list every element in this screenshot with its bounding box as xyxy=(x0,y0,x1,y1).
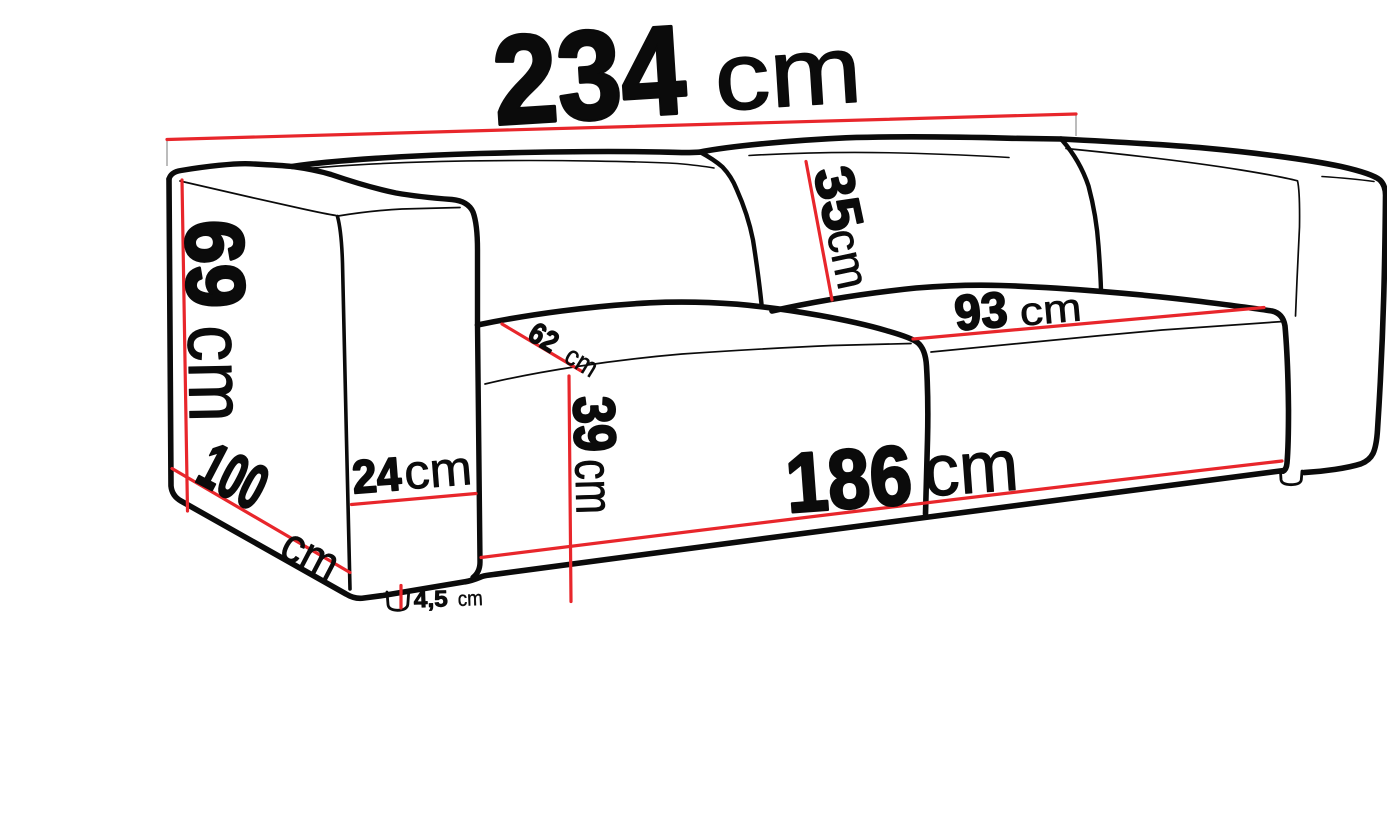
svg-text:cm: cm xyxy=(711,16,864,132)
svg-text:69: 69 xyxy=(168,219,261,309)
svg-text:186: 186 xyxy=(782,427,915,530)
svg-text:cm: cm xyxy=(563,458,623,515)
svg-text:39: 39 xyxy=(561,395,628,453)
svg-text:234: 234 xyxy=(489,0,689,151)
svg-text:4,5: 4,5 xyxy=(413,585,448,612)
svg-text:cm: cm xyxy=(457,587,483,611)
svg-text:24: 24 xyxy=(350,447,403,504)
svg-text:93: 93 xyxy=(952,281,1010,341)
svg-text:cm: cm xyxy=(402,441,474,500)
svg-text:cm: cm xyxy=(171,324,262,423)
svg-text:cm: cm xyxy=(1018,286,1084,335)
svg-text:cm: cm xyxy=(920,425,1021,513)
